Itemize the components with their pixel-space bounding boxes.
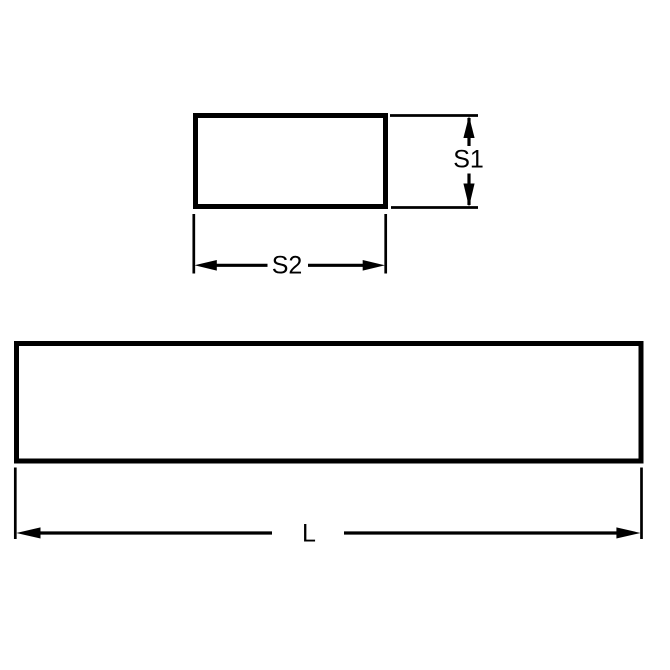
svg-text:S1: S1 [453, 146, 484, 174]
svg-text:L: L [302, 520, 316, 548]
svg-text:S2: S2 [272, 252, 303, 280]
